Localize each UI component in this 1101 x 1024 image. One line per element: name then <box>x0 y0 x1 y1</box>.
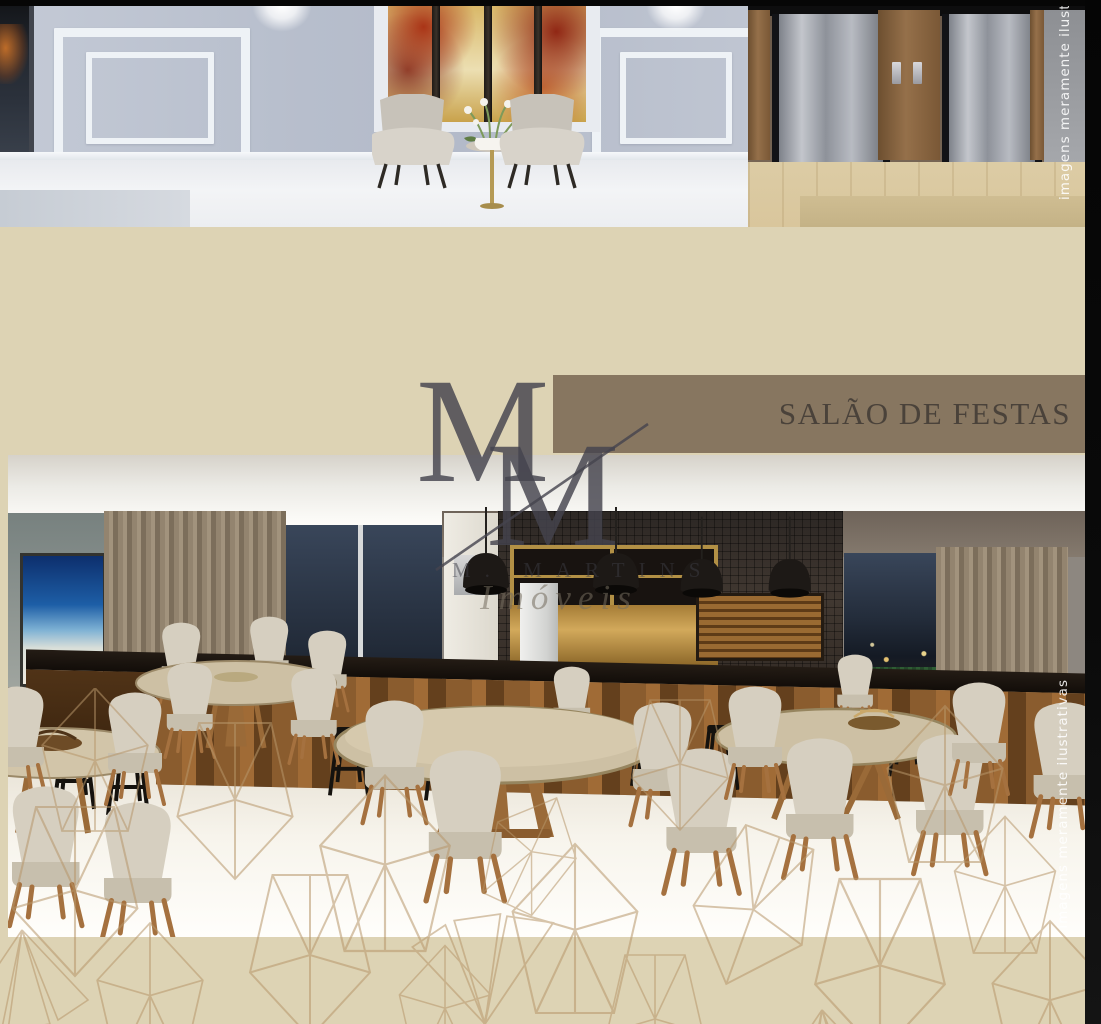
armchair-icon <box>372 94 454 188</box>
lobby-door-frame <box>29 6 34 160</box>
wall-molding-left-inner <box>86 52 214 144</box>
dining-chair-icon <box>102 802 175 937</box>
watermark-disclaimer-top: imagens meramente ilustrativas <box>1057 6 1073 200</box>
lobby-seating-group <box>372 94 612 224</box>
pendant-lamp-icon <box>463 507 509 595</box>
ceiling-downlight-icon <box>646 6 706 32</box>
lobby-render-photo: imagens meramente ilustrativas <box>0 6 1085 227</box>
brochure-page: imagens meramente ilustrativas SALÃO DE … <box>0 0 1101 1024</box>
pendant-lamp-icon <box>593 507 639 595</box>
elevator-call-button[interactable] <box>892 62 901 84</box>
pendant-lamp-icon <box>769 517 811 598</box>
wall-molding-right-inner <box>620 52 732 144</box>
right-edge-bar <box>1085 0 1101 1024</box>
lobby-door-outside-glow <box>0 24 28 84</box>
watermark-disclaimer-bottom: imagens meramente ilustrativas <box>1055 679 1071 929</box>
dining-chair-icon <box>10 786 83 925</box>
section-title: SALÃO DE FESTAS <box>553 375 1085 453</box>
party-room-render-photo: imagens meramente ilustrativas <box>8 455 1085 937</box>
elevator-door <box>772 14 890 162</box>
dining-furniture <box>8 455 1085 937</box>
wood-pillar <box>878 10 940 160</box>
ceiling-downlight-icon <box>252 6 312 32</box>
dining-chair-icon <box>289 669 338 764</box>
section-title-band: SALÃO DE FESTAS <box>553 375 1085 453</box>
wood-pillar <box>1030 10 1044 160</box>
wood-pillar <box>748 10 770 160</box>
elevator-call-button[interactable] <box>913 62 922 84</box>
dining-chair-icon <box>664 748 739 893</box>
lobby-floor-tile-dark <box>0 190 190 227</box>
pendant-lamp-icon <box>681 517 723 598</box>
elevator-door <box>942 14 1042 162</box>
elevator-rug <box>800 196 1085 227</box>
